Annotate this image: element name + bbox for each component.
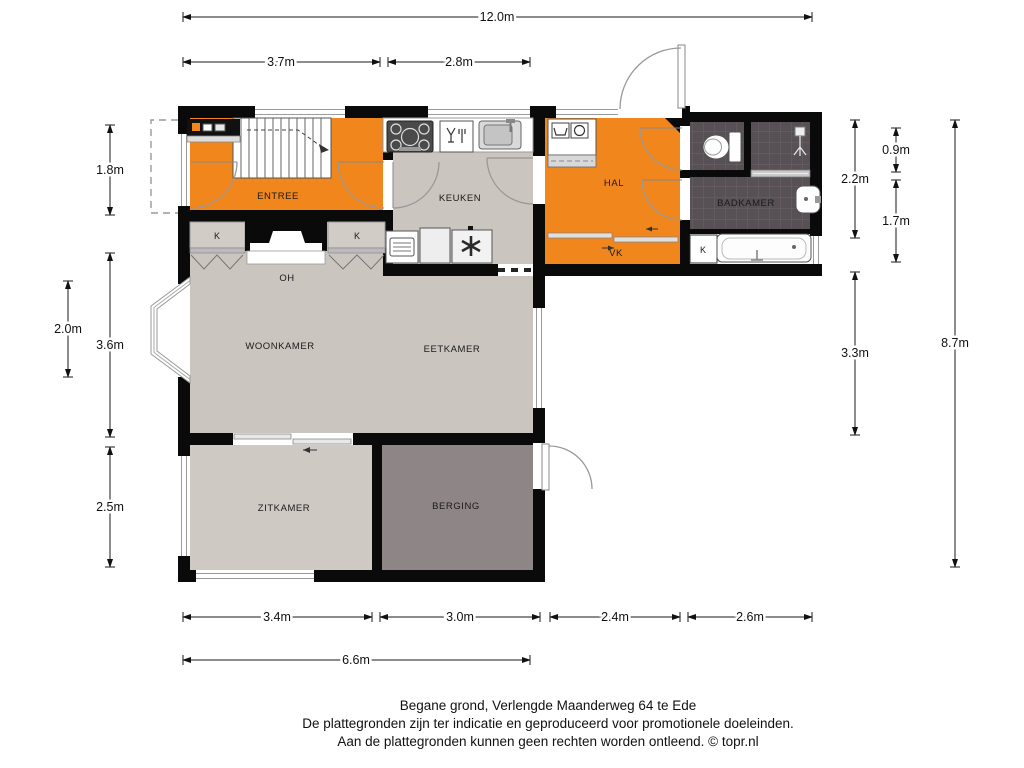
room-label-fireplace: OH	[279, 273, 294, 284]
hob-grill	[399, 147, 421, 151]
dim-top-entree: 3.7m	[183, 55, 380, 69]
slider-hal-vk-bar2	[614, 237, 678, 242]
sink-basin	[484, 125, 512, 145]
room-label-badkamer: BADKAMER	[717, 198, 775, 209]
laundry-unit	[548, 119, 596, 167]
closet-right-label: K	[354, 231, 360, 241]
footer-disclaimer-2: Aan de plattegronden kunnen geen rechten…	[337, 734, 758, 749]
meter-cupboard	[187, 119, 240, 142]
dim-label-right-badkamer: 1.7m	[882, 214, 910, 228]
dim-right-toilet: 0.9m	[882, 128, 910, 172]
closet-badkamer-label: K	[700, 245, 706, 255]
floorplan-drawing: ENTREE KEUKEN HAL VK BADKAMER WOONKAMER …	[0, 0, 1024, 768]
closet-left-label: K	[214, 231, 220, 241]
dim-label-top-keuken: 2.8m	[445, 55, 473, 69]
stairs	[233, 118, 331, 178]
dim-label-top-entree: 3.7m	[267, 55, 295, 69]
footer-captions: Begane grond, Verlengde Maanderweg 64 te…	[302, 698, 794, 749]
room-label-vk: VK	[609, 248, 623, 259]
doorway-front-hal	[618, 106, 682, 118]
porch-overhang-outline	[151, 120, 178, 213]
berging-door-arc	[549, 446, 592, 489]
window-top-stairs	[255, 106, 345, 118]
dim-label-left-woonkamer: 3.6m	[96, 338, 124, 352]
dim-label-right-hal: 2.2m	[841, 172, 869, 186]
dim-left-zitkamer: 2.5m	[96, 447, 124, 567]
tub-drain	[792, 245, 796, 249]
stairs-icon	[233, 118, 331, 178]
dim-label-top-total: 12.0m	[480, 10, 515, 24]
dim-right-hal: 2.2m	[841, 120, 869, 238]
doorway-hal-badkamer	[680, 178, 690, 220]
fridge-icon	[420, 228, 450, 263]
meter-box-gray	[215, 124, 225, 131]
footer-disclaimer-1: De plattegronden zijn ter indicatie en g…	[302, 716, 794, 731]
meter-box-white	[203, 124, 212, 131]
hal-front-door-arc	[620, 48, 681, 109]
dim-label-bottom-zitkamer: 3.4m	[263, 610, 291, 624]
dim-bottom-zitkamer: 3.4m	[183, 610, 372, 624]
dim-right-badkamer: 1.7m	[882, 180, 910, 262]
dim-top-keuken: 2.8m	[388, 55, 530, 69]
closet-left-shelf	[190, 248, 245, 253]
closet-right-shelf	[328, 248, 385, 253]
shower-icon	[795, 127, 805, 136]
floorplan-page: ENTREE KEUKEN HAL VK BADKAMER WOONKAMER …	[0, 0, 1024, 768]
meter-box-orange	[192, 123, 200, 131]
window-zitkamer-left	[178, 456, 190, 556]
kitchen-counter	[383, 118, 533, 152]
hal-front-door-leaf	[678, 45, 685, 108]
doorway-hal-toilet	[680, 126, 690, 170]
dim-left-woonkamer: 3.6m	[96, 253, 124, 437]
room-label-woonkamer: WOONKAMER	[245, 341, 314, 352]
dim-bottom-left-total: 6.6m	[183, 653, 530, 667]
dim-left-bay: 2.0m	[54, 281, 82, 377]
dim-label-bottom-badkamer: 2.6m	[736, 610, 764, 624]
basin-tap	[815, 196, 821, 203]
doorway-entree-keuken	[383, 160, 393, 210]
basin-drain	[804, 197, 808, 201]
window-eetkamer-right	[533, 308, 545, 408]
bay-window	[151, 277, 190, 383]
room-label-berging: BERGING	[432, 501, 480, 512]
window-zitkamer-bottom	[196, 570, 314, 582]
dim-right-eetkamer: 3.3m	[841, 272, 869, 435]
fireplace-hearth	[247, 251, 325, 264]
dim-label-bottom-left-total: 6.6m	[342, 653, 370, 667]
freezer-knob	[468, 226, 473, 230]
room-label-zitkamer: ZITKAMER	[258, 503, 310, 514]
footer-address-title: Begane grond, Verlengde Maanderweg 64 te…	[400, 698, 696, 713]
window-top-keuken	[428, 106, 530, 118]
dim-label-left-bay: 2.0m	[54, 322, 82, 336]
dim-label-right-eetkamer: 3.3m	[841, 346, 869, 360]
dim-label-right-total: 8.7m	[941, 336, 969, 350]
dishwasher-icon	[440, 121, 473, 152]
toilet-tank	[729, 132, 741, 162]
dim-label-left-zitkamer: 2.5m	[96, 500, 124, 514]
berging-door-leaf	[542, 444, 549, 490]
kitchen-appliance-row	[386, 226, 492, 263]
window-entree-left	[178, 134, 190, 206]
dim-top-total: 12.0m	[183, 10, 812, 24]
meter-shelf	[187, 136, 240, 142]
dim-left-entree: 1.8m	[96, 125, 124, 215]
toilet-icon	[703, 135, 729, 159]
room-label-entree: ENTREE	[257, 191, 299, 202]
room-label-keuken: KEUKEN	[439, 193, 481, 204]
window-top-hal	[556, 106, 618, 118]
dim-label-bottom-hal: 2.4m	[601, 610, 629, 624]
room-label-eetkamer: EETKAMER	[424, 344, 481, 355]
dim-bottom-berging: 3.0m	[380, 610, 540, 624]
room-label-hal: HAL	[604, 178, 624, 189]
dim-bottom-hal: 2.4m	[550, 610, 680, 624]
dim-label-left-entree: 1.8m	[96, 163, 124, 177]
dim-right-total: 8.7m	[941, 120, 969, 567]
dim-label-right-toilet: 0.9m	[882, 143, 910, 157]
dim-bottom-badkamer: 2.6m	[688, 610, 812, 624]
dim-label-bottom-berging: 3.0m	[446, 610, 474, 624]
window-badkamer-right	[810, 236, 822, 264]
doorway-keuken-hal	[533, 156, 545, 204]
slider-hal-vk-bar1	[548, 233, 612, 238]
sink-faucet	[506, 119, 515, 123]
